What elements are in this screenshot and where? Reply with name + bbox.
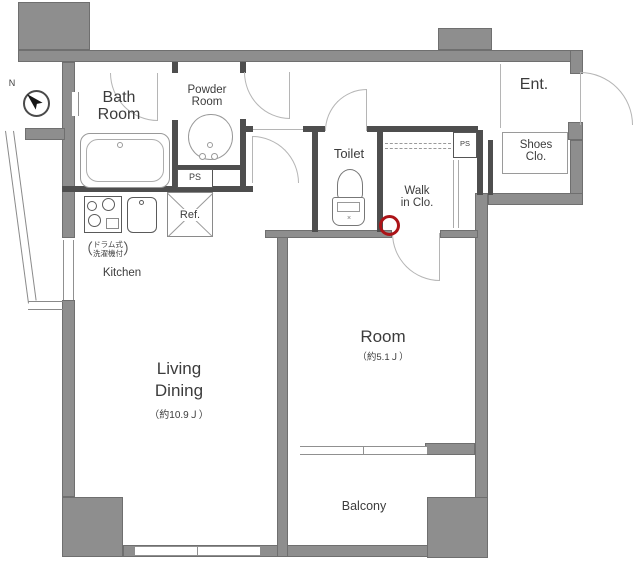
hall-opening-line bbox=[253, 129, 303, 130]
bath-room-label-line2: Room bbox=[98, 106, 141, 123]
entry-step-line bbox=[500, 64, 501, 128]
wall-room-north-right bbox=[440, 230, 478, 238]
toilet-tank-lid bbox=[337, 202, 360, 212]
wall-southeast-block bbox=[427, 497, 488, 558]
living-dining-label-line1: Living bbox=[157, 359, 201, 378]
washer-note: （ ドラム式 洗濯機付 ） bbox=[78, 238, 138, 259]
walk-in-closet-label-line2: in Clo. bbox=[401, 197, 434, 209]
wall-room-north-left bbox=[265, 230, 392, 238]
refrigerator-label: Ref. bbox=[167, 210, 213, 222]
bath-window bbox=[71, 92, 79, 116]
partition-toilet-west bbox=[312, 132, 318, 232]
powder-room-label: Powder Room bbox=[178, 84, 236, 109]
stove-grill bbox=[106, 218, 119, 229]
room-label: Room （約5.1Ｊ） bbox=[340, 328, 426, 365]
washbasin bbox=[188, 114, 233, 160]
entry-label: Ent. bbox=[508, 76, 560, 93]
kitchen-label: Kitchen bbox=[92, 267, 152, 279]
floor-plan: PS Ref. × PS N Bath Room Powder Room Ent… bbox=[0, 0, 640, 562]
partition-shoes-west bbox=[488, 140, 493, 195]
living-south-window-mullion bbox=[197, 546, 198, 556]
closet-divider-line-2 bbox=[458, 160, 459, 228]
red-marker-circle bbox=[379, 215, 400, 236]
shoes-closet-label-line1: Shoes bbox=[520, 139, 553, 151]
wall-west-lower bbox=[62, 300, 75, 497]
walk-in-closet-label: Walk in Clo. bbox=[385, 185, 449, 210]
partition-bath-east-1 bbox=[172, 62, 178, 73]
room-size-label: （約5.1Ｊ） bbox=[357, 352, 408, 363]
bath-room-label-line1: Bath bbox=[103, 89, 136, 106]
room-label-text: Room bbox=[360, 327, 405, 346]
pipe-space-2-label: PS bbox=[453, 140, 477, 148]
washer-note-open-paren: （ bbox=[78, 238, 93, 259]
entry-door-arc bbox=[580, 72, 633, 125]
stove-burner-3 bbox=[88, 214, 101, 227]
shoes-closet-label-line2: Clo. bbox=[526, 151, 546, 163]
wall-right-upper bbox=[570, 50, 583, 74]
living-dining-label-line2: Dining bbox=[155, 381, 203, 400]
west-slant-foot-line-1 bbox=[28, 301, 63, 302]
shoes-closet-label: Shoes Clo. bbox=[505, 139, 567, 164]
pipe-space-1-label: PS bbox=[177, 173, 213, 183]
toilet-door-arc bbox=[325, 89, 367, 131]
entry-door-leaf bbox=[580, 72, 581, 125]
kitchen-faucet bbox=[139, 200, 144, 205]
balcony-label: Balcony bbox=[324, 500, 404, 514]
kitchen-west-window bbox=[63, 240, 74, 300]
toilet-door-leaf bbox=[366, 89, 367, 131]
bathtub-inner bbox=[86, 139, 164, 182]
washbasin-faucet bbox=[207, 142, 213, 148]
washbasin-foot-left bbox=[199, 153, 206, 160]
hall-living-door-arc bbox=[252, 136, 299, 183]
wall-room-balcony bbox=[425, 443, 475, 455]
stove-burner-1 bbox=[87, 201, 97, 211]
wall-west-jog bbox=[25, 128, 65, 140]
bath-door-leaf bbox=[157, 73, 158, 121]
wall-room-west bbox=[277, 232, 288, 557]
living-dining-label: Living Dining （約10.9Ｊ） bbox=[130, 358, 228, 424]
west-slant-foot-line-2 bbox=[28, 309, 63, 310]
room-closet-door-arc bbox=[392, 233, 440, 281]
wall-top-band bbox=[18, 50, 583, 62]
wall-entry-bottom bbox=[488, 193, 583, 205]
partition-hall-north-1 bbox=[245, 126, 253, 132]
washbasin-foot-right bbox=[211, 153, 218, 160]
bath-room-label: Bath Room bbox=[85, 89, 153, 124]
hall-living-door-leaf bbox=[252, 136, 253, 183]
bathtub-drain bbox=[117, 142, 123, 148]
powder-door-leaf bbox=[289, 72, 290, 119]
wall-southwest-block bbox=[62, 497, 123, 557]
living-dining-size-label: （約10.9Ｊ） bbox=[149, 410, 208, 421]
washer-note-line2: 洗濯機付 bbox=[93, 249, 123, 258]
washer-note-close-paren: ） bbox=[123, 238, 138, 259]
toilet-drain-mark: × bbox=[344, 215, 354, 223]
room-closet-door-leaf bbox=[439, 233, 440, 281]
closet-divider-line-1 bbox=[453, 160, 454, 228]
closet-rod-line-1 bbox=[385, 143, 451, 144]
room-balcony-window-mullion bbox=[363, 446, 364, 455]
walk-in-closet-label-line1: Walk bbox=[404, 185, 429, 197]
powder-door-arc bbox=[244, 72, 290, 119]
wall-top-bump bbox=[438, 28, 492, 50]
refrigerator-label-text: Ref. bbox=[178, 209, 202, 221]
powder-room-label-line2: Room bbox=[192, 96, 223, 108]
toilet-label: Toilet bbox=[320, 147, 378, 161]
powder-room-label-line1: Powder bbox=[188, 84, 227, 96]
stove-burner-2 bbox=[102, 198, 115, 211]
compass-north-label: N bbox=[6, 79, 18, 89]
wall-west-upper bbox=[62, 62, 75, 238]
washer-note-line1: ドラム式 bbox=[93, 240, 123, 249]
wall-top-left-block bbox=[18, 2, 90, 50]
partition-powder-east-2 bbox=[240, 119, 246, 190]
closet-rod-line-2 bbox=[385, 148, 451, 149]
partition-wic-east bbox=[477, 130, 483, 195]
